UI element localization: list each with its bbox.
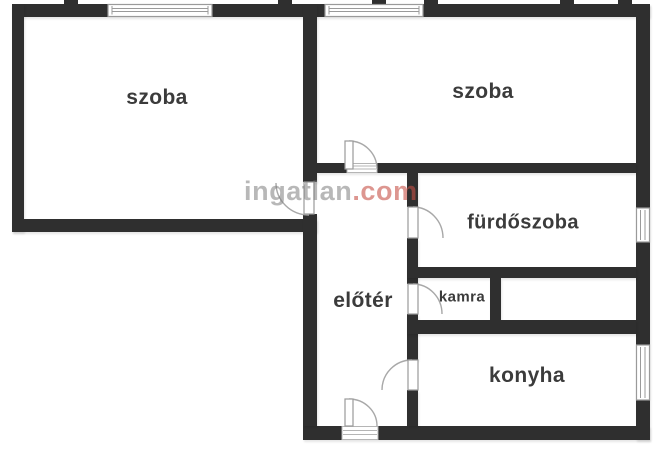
door-pantry [408, 284, 442, 314]
wall-stub [278, 0, 292, 5]
wall-right-room-bottom [317, 163, 636, 173]
wall-center-lower [303, 214, 317, 426]
floor-plan: szoba szoba fürdőszoba előtér kamra kony… [0, 0, 658, 450]
wall-kitchen-top [407, 320, 636, 334]
door-kitchen [382, 360, 418, 390]
wall-left-room-bottom [12, 219, 317, 232]
wall-stub [618, 0, 632, 5]
watermark-suffix: .com [352, 176, 417, 206]
room-label-left-szoba: szoba [126, 86, 188, 110]
wall-center-upper [303, 4, 317, 182]
wall-hall-east-4 [407, 390, 418, 426]
door-bathroom [408, 207, 443, 238]
room-label-pantry: kamra [439, 289, 485, 306]
wall-pantry-divider [490, 278, 501, 320]
wall-bathroom-bottom [407, 267, 636, 278]
room-label-kitchen: konyha [489, 364, 565, 388]
wall-bottom [303, 426, 650, 440]
wall-stub [372, 0, 386, 5]
room-label-right-szoba: szoba [452, 80, 514, 104]
watermark: ingatlan.com [244, 176, 418, 207]
wall-left [12, 4, 24, 232]
wall-stub [424, 0, 438, 5]
wall-stub [560, 0, 574, 5]
wall-top [12, 4, 650, 17]
room-label-bathroom: fürdőszoba [467, 212, 579, 235]
wall-right [636, 4, 650, 440]
wall-stub [64, 0, 78, 5]
watermark-brand: ingatlan [244, 176, 352, 206]
room-label-hall: előtér [333, 289, 393, 313]
